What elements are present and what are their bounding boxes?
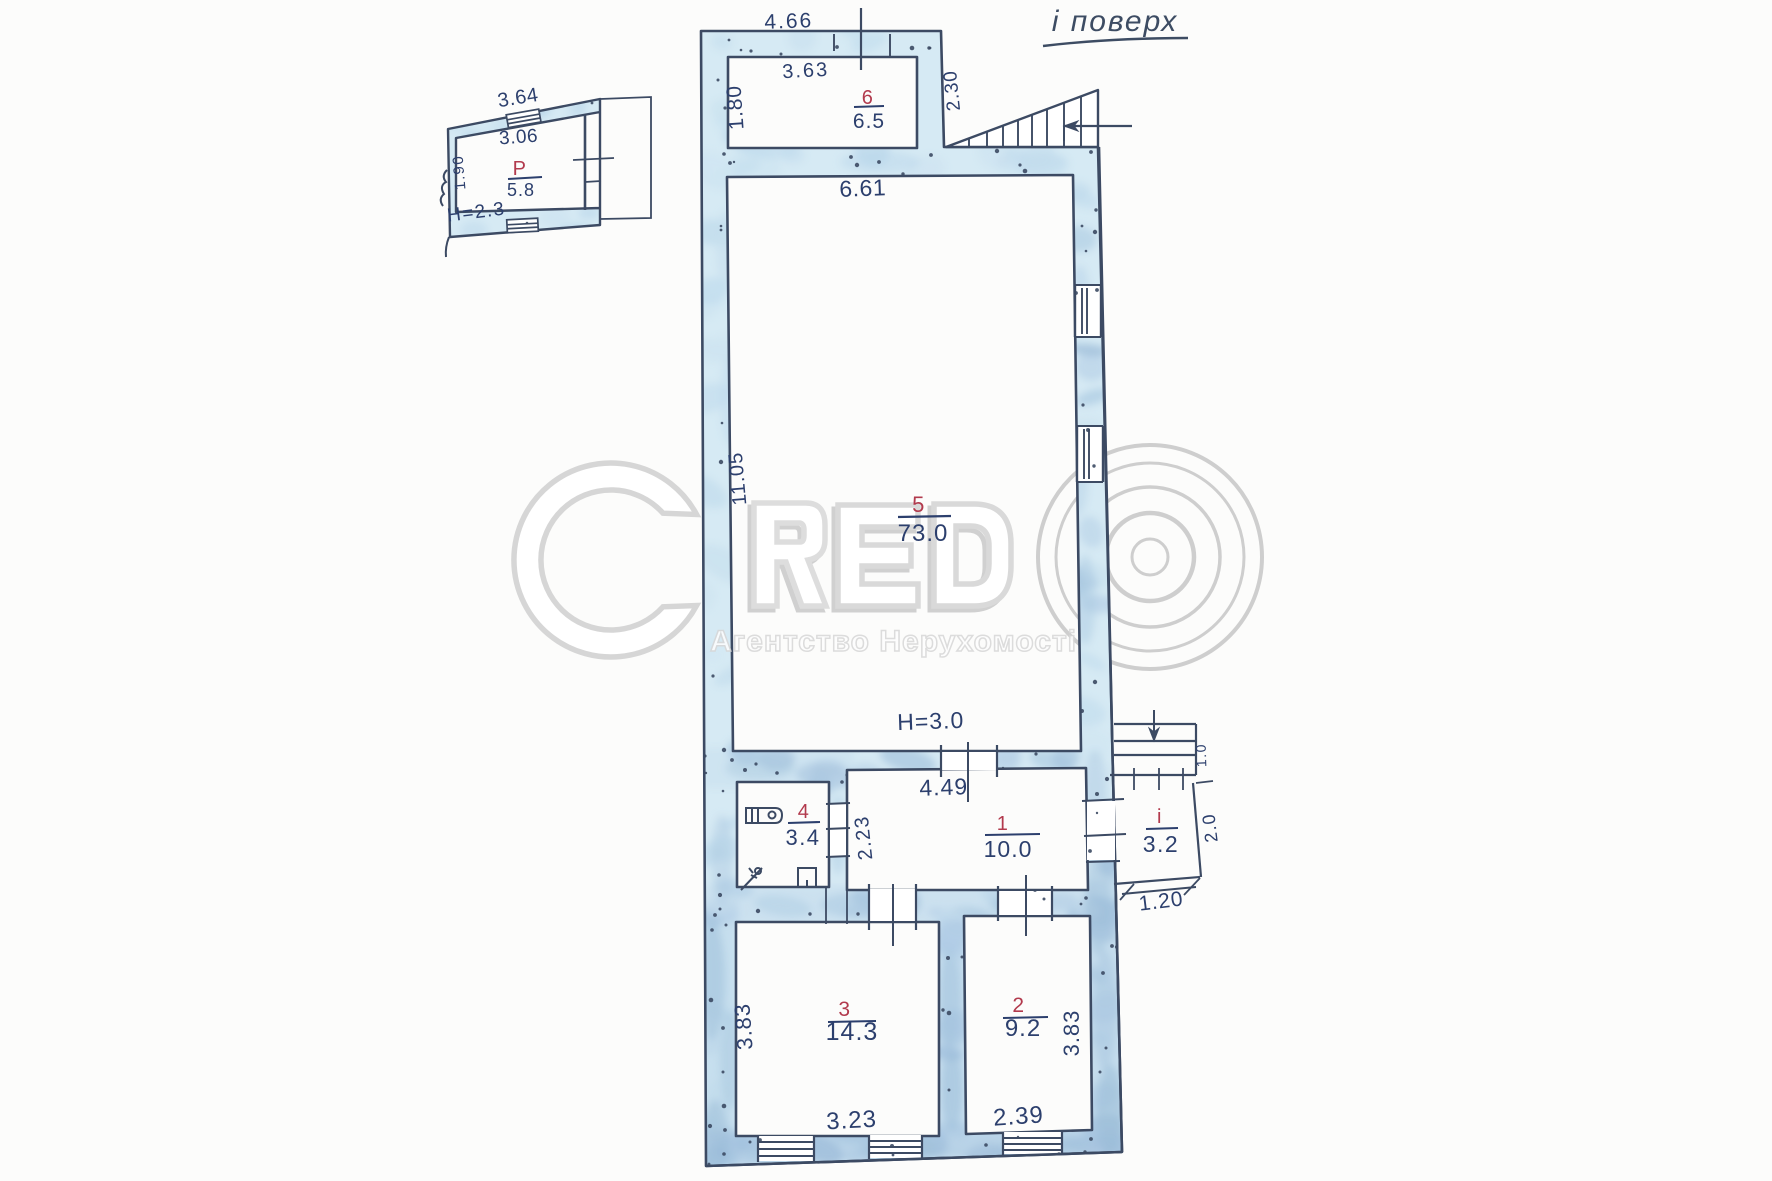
svg-text:2.0: 2.0: [1198, 812, 1221, 844]
svg-text:6.61: 6.61: [839, 174, 887, 202]
svg-text:3.23: 3.23: [826, 1106, 878, 1136]
svg-text:H=3.0: H=3.0: [897, 707, 965, 735]
svg-text:1.90: 1.90: [450, 154, 470, 191]
svg-text:4.66: 4.66: [764, 9, 814, 34]
svg-text:4.49: 4.49: [919, 773, 969, 801]
svg-text:1.80: 1.80: [722, 84, 748, 130]
svg-text:3.63: 3.63: [782, 59, 830, 83]
svg-text:73.0: 73.0: [898, 520, 949, 547]
svg-text:1: 1: [997, 813, 1010, 835]
svg-text:2: 2: [1012, 994, 1025, 1017]
svg-text:Агентство Нерухомості: Агентство Нерухомості: [710, 625, 1077, 658]
svg-text:3.83: 3.83: [1059, 1010, 1084, 1057]
svg-text:6.5: 6.5: [853, 110, 885, 133]
svg-text:і поверх: і поверх: [1052, 5, 1179, 38]
svg-text:Р: Р: [513, 158, 528, 180]
svg-text:11.05: 11.05: [725, 451, 752, 506]
svg-text:3.83: 3.83: [729, 1002, 757, 1050]
svg-text:3.06: 3.06: [498, 126, 538, 150]
svg-text:4: 4: [798, 801, 811, 823]
svg-text:14.3: 14.3: [826, 1018, 879, 1046]
svg-text:5: 5: [912, 492, 926, 517]
svg-text:5.8: 5.8: [507, 180, 535, 200]
svg-text:3.2: 3.2: [1143, 831, 1179, 857]
svg-text:1.0: 1.0: [1193, 743, 1210, 768]
svg-text:2.39: 2.39: [992, 1101, 1044, 1131]
svg-text:3.4: 3.4: [785, 825, 820, 850]
svg-text:2.23: 2.23: [851, 814, 878, 861]
svg-text:і: і: [1157, 806, 1163, 828]
svg-text:2.30: 2.30: [940, 69, 965, 112]
svg-text:9.2: 9.2: [1005, 1015, 1041, 1042]
svg-text:10.0: 10.0: [984, 836, 1033, 862]
